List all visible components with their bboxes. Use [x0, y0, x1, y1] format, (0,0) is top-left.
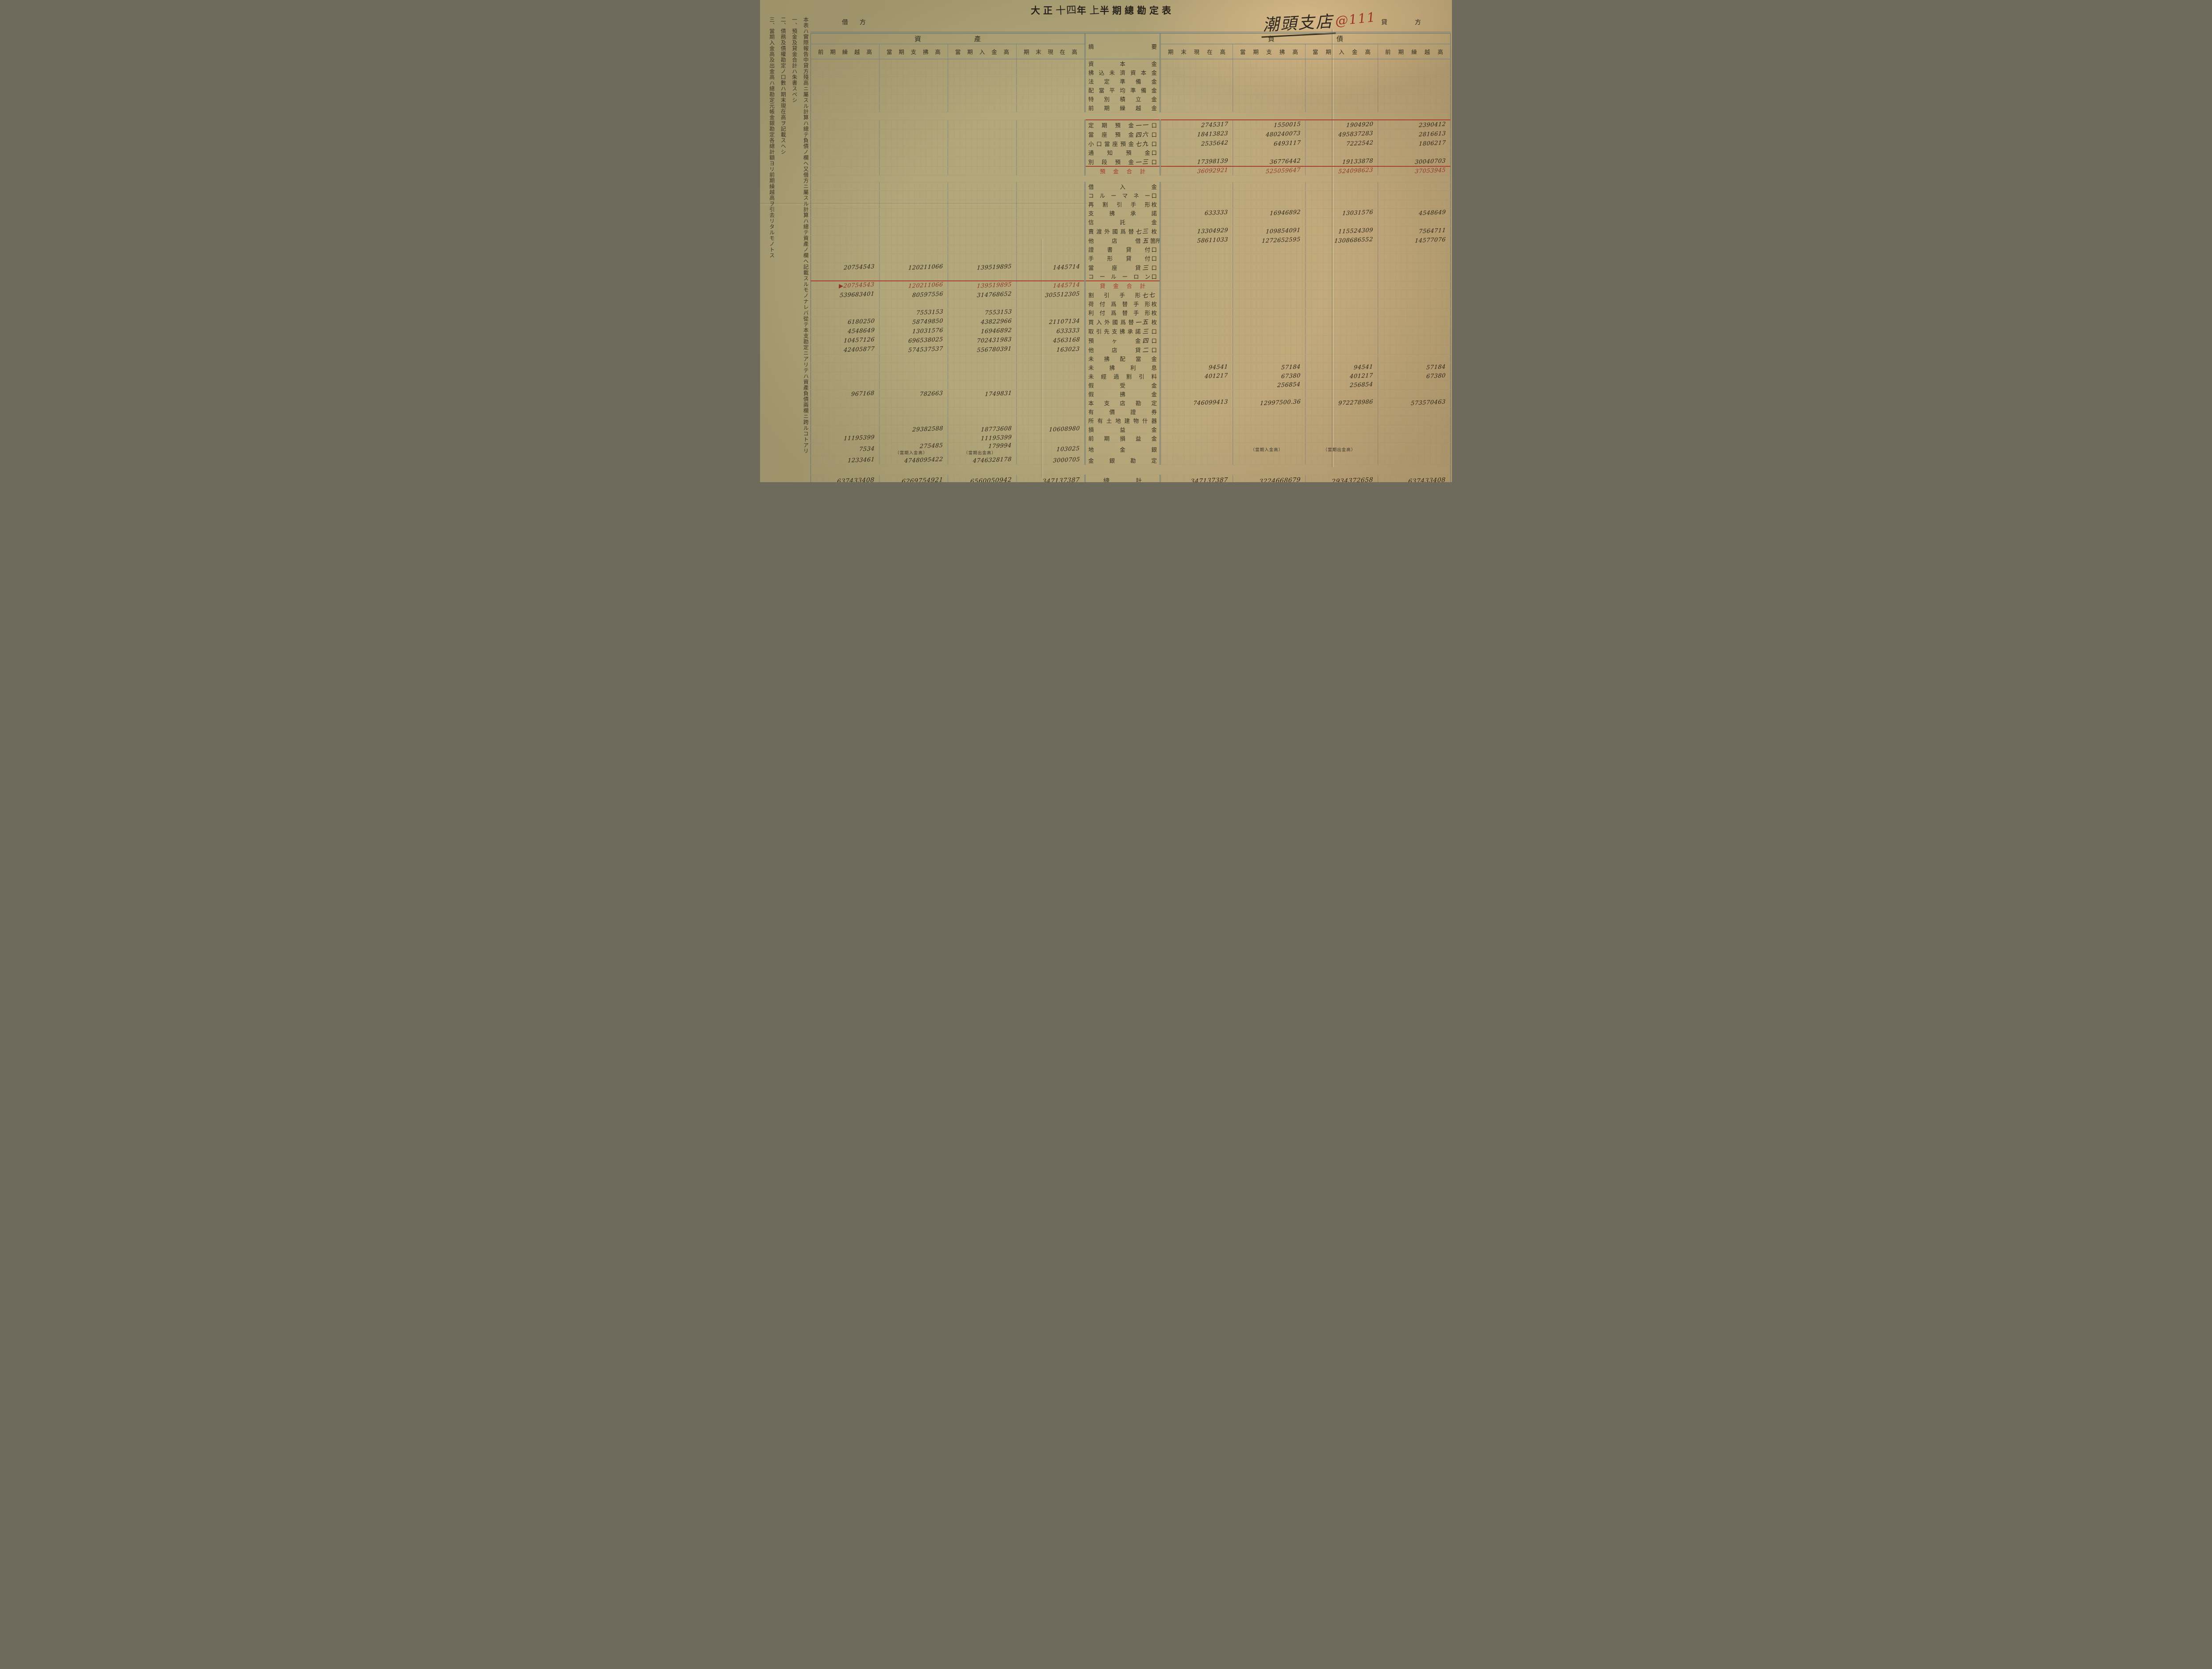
asset-amount-cell: [948, 372, 1017, 381]
handwritten-count: 四六: [1135, 130, 1149, 139]
liability-amount-cell: 36092921: [1160, 166, 1233, 176]
account-name-cell: 荷付爲替手形枚: [1085, 299, 1160, 308]
account-label: 荷付爲替手形: [1088, 299, 1150, 308]
asset-amount-cell: [811, 59, 879, 68]
asset-amount-cell: 539683401: [811, 290, 879, 299]
asset-amount-cell: [1017, 157, 1085, 167]
asset-amount-cell: 16946892: [948, 326, 1017, 336]
liability-amount-cell: [1306, 416, 1378, 425]
liability-col-ending: 期末現在高: [1160, 44, 1233, 59]
unit-label: 箇所: [1150, 236, 1157, 245]
asset-amount-cell: [948, 130, 1017, 139]
handwritten-amount: 637433408: [837, 476, 875, 482]
liability-amount-cell: [1233, 416, 1306, 425]
liability-amount-cell: [1233, 86, 1306, 95]
liability-amount-cell: [1233, 218, 1306, 226]
handwritten-amount: 1904920: [1346, 121, 1373, 129]
ledger-row: 他店借五箇所5861103312726525951308686552145770…: [811, 236, 1451, 245]
account-label: 特別積立金: [1088, 95, 1157, 103]
asset-amount-cell: [948, 226, 1017, 236]
account-name-cell: 未拂配當金: [1085, 354, 1160, 363]
asset-amount-cell: 120211066: [879, 281, 948, 290]
handwritten-amount: 13031576: [1342, 209, 1373, 217]
account-name-cell: 未拂利息: [1085, 363, 1160, 372]
asset-amount-cell: [948, 200, 1017, 209]
account-label: 配當平均準備金: [1088, 86, 1157, 94]
liability-amount-cell: 58611033: [1160, 236, 1233, 245]
asset-amount-cell: [811, 381, 879, 390]
account-label: 法定準備金: [1088, 77, 1157, 85]
liability-amount-cell: [1306, 191, 1378, 200]
unit-label: 枚: [1150, 299, 1157, 308]
handwritten-amount: 58749850: [912, 318, 943, 326]
asset-amount-cell: [948, 363, 1017, 372]
asset-amount-cell: [879, 218, 948, 226]
account-label: 前期損益金: [1088, 434, 1157, 442]
liability-amount-cell: [1160, 68, 1233, 77]
ledger-row: 再割引手形枚: [811, 200, 1451, 209]
asset-amount-cell: [1017, 407, 1085, 416]
handwritten-amount: 109854091: [1266, 227, 1301, 235]
unit-label: 口: [1150, 139, 1157, 148]
ledger-row: 9671687826631749831假拂金: [811, 390, 1451, 399]
account-name-cell: 本支店勘定: [1085, 399, 1160, 407]
asset-amount-cell: [811, 77, 879, 86]
asset-amount-cell: [811, 372, 879, 381]
unit-label: 口: [1150, 272, 1157, 280]
liability-amount-cell: [1233, 345, 1306, 354]
handwritten-count: 三: [1142, 263, 1149, 272]
account-name-cell: 假受金: [1085, 381, 1160, 390]
account-name-cell: 資本金: [1085, 59, 1160, 68]
account-label: 借入金: [1088, 182, 1157, 191]
handwritten-amount: 139519895: [977, 281, 1012, 289]
handwritten-amount: 6493117: [1273, 139, 1301, 147]
liability-amount-cell: [1233, 148, 1306, 157]
liability-amount-cell: [1160, 95, 1233, 104]
title-printed-part: 年: [1077, 5, 1089, 16]
title-printed-part: 半期總勘定表: [1100, 5, 1174, 16]
handwritten-amount: 6269754921: [901, 476, 943, 482]
account-label: 損益金: [1088, 425, 1157, 434]
liability-amount-cell: [1306, 254, 1378, 263]
liability-amount-cell: [1378, 425, 1451, 434]
liability-amount-cell: 67380: [1233, 372, 1306, 381]
account-name-cell: コルーマネー口: [1085, 191, 1160, 200]
handwritten-amount: 256854: [1350, 381, 1374, 389]
ledger-row: 支拂承諾63333316946892130315764548649: [811, 209, 1451, 218]
handwritten-amount: 12997500.36: [1260, 399, 1301, 407]
asset-amount-cell: [811, 130, 879, 139]
asset-amount-cell: 43822966: [948, 317, 1017, 326]
liability-amount-cell: 7564711: [1378, 226, 1451, 236]
asset-amount-cell: 10457126: [811, 336, 879, 345]
handwritten-amount: 13304929: [1197, 227, 1228, 235]
liability-amount-cell: [1233, 456, 1306, 465]
unit-label: 口: [1150, 157, 1157, 166]
account-name-cell: 未經過割引料: [1085, 372, 1160, 381]
liability-amount-cell: 94541: [1160, 363, 1233, 372]
handwritten-amount: 525059647: [1266, 167, 1301, 175]
asset-amount-cell: [1017, 381, 1085, 390]
liability-amount-cell: [1306, 59, 1378, 68]
handwritten-amount: 275485: [920, 443, 944, 450]
account-name-cell: コールーロン口: [1085, 272, 1160, 281]
asset-col-ending: 期末現在高: [1017, 44, 1085, 59]
asset-amount-cell: [948, 182, 1017, 191]
account-label: 定期預金: [1088, 121, 1134, 129]
handwritten-count: 五: [1142, 236, 1149, 245]
liability-col-receipts: 當期入金高: [1306, 44, 1378, 59]
asset-amount-cell: [879, 148, 948, 157]
liability-amount-cell: [1233, 434, 1306, 443]
handwritten-amount: 42405877: [843, 345, 875, 353]
asset-amount-cell: [879, 209, 948, 218]
account-name-cell: 定期預金一一口: [1085, 120, 1160, 130]
liability-amount-cell: [1378, 104, 1451, 112]
account-label: 割引手形: [1088, 291, 1141, 299]
handwritten-amount: 19133878: [1342, 157, 1373, 165]
asset-amount-cell: [811, 182, 879, 191]
ledger-row: 42405877574537537556780391163023他店貸二口: [811, 345, 1451, 354]
asset-amount-cell: 633333: [1017, 326, 1085, 336]
ledger-row: 荷付爲替手形枚: [811, 299, 1451, 308]
unit-label: 枚: [1150, 227, 1157, 235]
asset-amount-cell: 139519895: [948, 281, 1017, 290]
account-name-cell: 取引先支拂承諾三口: [1085, 326, 1160, 336]
handwritten-amount: 2745317: [1201, 121, 1228, 129]
handwritten-amount: 1308686552: [1334, 236, 1374, 245]
asset-amount-cell: [879, 104, 948, 112]
liability-amount-cell: [1233, 104, 1306, 112]
liability-amount-cell: [1378, 200, 1451, 209]
asset-amount-cell: [811, 416, 879, 425]
liability-amount-cell: 13304929: [1160, 226, 1233, 236]
liability-amount-cell: [1306, 317, 1378, 326]
ledger-row: 1233461474809542247463281783000705金銀勘定: [811, 456, 1451, 465]
liability-amount-cell: [1378, 443, 1451, 456]
note-3: 三、當期入金高及出金高ハ總勘定元帳金銀勘定各總計額ヨリ前期繰越高ヲ引去リタルモノ…: [768, 17, 776, 459]
ledger-row: 293825881877360810608980損益金: [811, 425, 1451, 434]
ledger-row: 拂込未濟資本金: [811, 68, 1451, 77]
liability-amount-cell: [1233, 290, 1306, 299]
asset-amount-cell: [811, 104, 879, 112]
liability-amount-cell: [1233, 317, 1306, 326]
liability-amount-cell: [1160, 272, 1233, 281]
liability-amount-cell: （當期入金高）: [1233, 443, 1306, 456]
liability-amount-cell: [1378, 390, 1451, 399]
liability-amount-cell: [1306, 336, 1378, 345]
asset-amount-cell: 347137387: [1017, 475, 1085, 483]
asset-amount-cell: [811, 354, 879, 363]
asset-amount-cell: 7534: [811, 443, 879, 456]
liability-amount-cell: [1378, 182, 1451, 191]
asset-amount-cell: [948, 299, 1017, 308]
ledger-row: コルーマネー口: [811, 191, 1451, 200]
handwritten-amount: 67380: [1281, 372, 1301, 380]
liability-amount-cell: [1306, 308, 1378, 317]
liability-amount-cell: [1378, 95, 1451, 104]
asset-amount-cell: [948, 104, 1017, 112]
unit-label: 枚: [1150, 200, 1157, 208]
liability-amount-cell: 401217: [1306, 372, 1378, 381]
asset-amount-cell: [948, 272, 1017, 281]
unit-label: 枚: [1150, 308, 1157, 317]
asset-amount-cell: 1233461: [811, 456, 879, 465]
account-label: 貸金合計: [1088, 281, 1157, 290]
handwritten-amount: 3000705: [1052, 457, 1080, 464]
note-1: 一、預金及貸金合計ハ朱書スベシ: [790, 17, 799, 459]
account-label: 支拂承諾: [1088, 209, 1157, 217]
asset-amount-cell: [811, 226, 879, 236]
account-label: 他店借: [1088, 236, 1141, 245]
handwritten-amount: 4548649: [1418, 209, 1446, 217]
liability-amount-cell: [1378, 407, 1451, 416]
handwritten-amount: 6180250: [847, 318, 875, 326]
handwritten-amount: 524098623: [1338, 167, 1374, 175]
liability-amount-cell: 67380: [1378, 372, 1451, 381]
asset-amount-cell: 314768652: [948, 290, 1017, 299]
account-label: 假受金: [1088, 381, 1157, 389]
account-label: 當座預金: [1088, 130, 1134, 138]
account-label: 未拂配當金: [1088, 354, 1157, 363]
asset-amount-cell: 967168: [811, 390, 879, 399]
asset-amount-cell: ▶20754543: [811, 281, 879, 290]
liability-amount-cell: [1233, 200, 1306, 209]
asset-col-payments: 當期支拂高: [879, 44, 948, 59]
asset-amount-cell: [879, 354, 948, 363]
asset-amount-cell: [1017, 363, 1085, 372]
asset-amount-cell: [879, 157, 948, 167]
liability-amount-cell: [1233, 254, 1306, 263]
account-name-cell: 割引手形七七: [1085, 290, 1160, 299]
handwritten-amount: 1806217: [1418, 139, 1446, 147]
account-label: 資本金: [1088, 59, 1157, 68]
ledger-row: 未拂利息94541571849454157184: [811, 363, 1451, 372]
account-name-cell: 他店借五箇所: [1085, 236, 1160, 245]
liability-col-payments: 當期支拂高: [1233, 44, 1306, 59]
liability-amount-cell: 57184: [1233, 363, 1306, 372]
ledger-row: 證書貸付口: [811, 245, 1451, 254]
asset-amount-cell: 18773608: [948, 425, 1017, 434]
handwritten-amount: 573570463: [1411, 399, 1446, 407]
liability-amount-cell: [1306, 345, 1378, 354]
ledger-row: 預金合計3609292152505964752409862337053945: [811, 166, 1451, 176]
liability-amount-cell: 36776442: [1233, 157, 1306, 167]
handwritten-amount: 4563168: [1052, 336, 1080, 344]
handwritten-count: 三: [1142, 326, 1149, 336]
asset-amount-cell: 11195399: [948, 434, 1017, 443]
asset-amount-cell: [1017, 226, 1085, 236]
asset-amount-cell: [811, 191, 879, 200]
ledger-row: 未拂配當金: [811, 354, 1451, 363]
liability-amount-cell: 2535642: [1160, 139, 1233, 148]
asset-amount-cell: 11195399: [811, 434, 879, 443]
liability-amount-cell: 1904920: [1306, 120, 1378, 130]
liability-amount-cell: 6493117: [1233, 139, 1306, 148]
handwritten-amount: 29382588: [912, 425, 943, 433]
column-sub-label: （當期入金高）: [879, 449, 943, 456]
liability-amount-cell: [1233, 59, 1306, 68]
asset-amount-cell: [879, 299, 948, 308]
ledger-row: 假受金256854256854: [811, 381, 1451, 390]
handwritten-amount: 94541: [1209, 364, 1229, 371]
ledger-row: ▶207545431202110661395198951445714貸金合計: [811, 281, 1451, 290]
handwritten-amount: 36092921: [1197, 167, 1228, 175]
account-label: 再割引手形: [1088, 200, 1150, 208]
liability-amount-cell: 37053945: [1378, 166, 1451, 176]
asset-amount-cell: [948, 209, 1017, 218]
asset-amount-cell: [811, 272, 879, 281]
asset-amount-cell: 6269754921: [879, 475, 948, 483]
asset-amount-cell: [1017, 254, 1085, 263]
ledger-row: コールーロン口: [811, 272, 1451, 281]
asset-amount-cell: [1017, 191, 1085, 200]
account-name-cell: 證書貸付口: [1085, 245, 1160, 254]
liability-amount-cell: [1306, 326, 1378, 336]
liability-amount-cell: 94541: [1306, 363, 1378, 372]
liability-amount-cell: [1378, 281, 1451, 290]
asset-amount-cell: 4548649: [811, 326, 879, 336]
liability-amount-cell: 19133878: [1306, 157, 1378, 167]
asset-amount-cell: 556780391: [948, 345, 1017, 354]
liability-amount-cell: 2934372658: [1306, 475, 1378, 483]
liability-amount-cell: [1306, 390, 1378, 399]
liability-amount-cell: [1378, 416, 1451, 425]
handwritten-amount: 3224668679: [1259, 476, 1301, 482]
ledger-row: 當座預金四六口184138234802400734958372832816613: [811, 130, 1451, 139]
handwritten-count: 一一: [1135, 120, 1149, 130]
liability-amount-cell: 256854: [1233, 381, 1306, 390]
asset-amount-cell: [879, 191, 948, 200]
handwritten-amount: 2934372658: [1331, 476, 1373, 482]
asset-amount-cell: [1017, 209, 1085, 218]
asset-amount-cell: 13031576: [879, 326, 948, 336]
account-name-cell: 他店貸二口: [1085, 345, 1160, 354]
asset-amount-cell: 7553153: [948, 308, 1017, 317]
asset-amount-cell: [948, 236, 1017, 245]
liability-amount-cell: [1306, 434, 1378, 443]
asset-col-carryover: 前期繰越高: [811, 44, 879, 59]
account-label: 當座貸: [1088, 263, 1141, 272]
asset-amount-cell: [1017, 166, 1085, 176]
asset-amount-cell: [879, 272, 948, 281]
account-name-cell: 金銀勘定: [1085, 456, 1160, 465]
liability-amount-cell: [1378, 68, 1451, 77]
handwritten-count: 一五: [1135, 317, 1149, 326]
account-label: 總計: [1088, 476, 1157, 482]
asset-amount-cell: 42405877: [811, 345, 879, 354]
liability-amount-cell: [1378, 299, 1451, 308]
liability-amount-cell: [1306, 290, 1378, 299]
asset-amount-cell: [811, 254, 879, 263]
liability-amount-cell: [1160, 317, 1233, 326]
handwritten-amount: 94541: [1354, 364, 1374, 371]
unit-label: 口: [1150, 245, 1157, 253]
liability-amount-cell: 12997500.36: [1233, 399, 1306, 407]
account-label: 利付爲替手形: [1088, 308, 1150, 317]
unit-label: 口: [1150, 254, 1157, 262]
summary-column-header: 摘要: [1085, 33, 1160, 59]
account-name-cell: 再割引手形枚: [1085, 200, 1160, 209]
handwritten-amount: 163023: [1056, 345, 1080, 353]
account-label: 本支店勘定: [1088, 399, 1157, 407]
liability-amount-cell: [1378, 434, 1451, 443]
handwritten-amount: 556780391: [977, 345, 1012, 353]
asset-amount-cell: [879, 182, 948, 191]
account-label: 通知預金: [1088, 148, 1150, 157]
asset-amount-cell: [811, 95, 879, 104]
account-name-cell: 拂込未濟資本金: [1085, 68, 1160, 77]
liability-amount-cell: 1806217: [1378, 139, 1451, 148]
handwritten-amount: 746099413: [1193, 399, 1229, 407]
asset-amount-cell: [1017, 218, 1085, 226]
handwritten-amount: 702431983: [977, 336, 1012, 344]
account-name-cell: 特別積立金: [1085, 95, 1160, 104]
handwritten-amount: 20754543: [843, 263, 875, 271]
ledger-row: 小口當座預金七九口2535642649311772225421806217: [811, 139, 1451, 148]
asset-amount-cell: [879, 363, 948, 372]
asset-amount-cell: [1017, 434, 1085, 443]
liability-amount-cell: 401217: [1160, 372, 1233, 381]
handwritten-amount: 21107134: [1048, 318, 1080, 326]
asset-amount-cell: 637433408: [811, 475, 879, 483]
ledger-row: 前期繰越金: [811, 104, 1451, 112]
account-label: コールーロン: [1088, 272, 1150, 280]
asset-amount-cell: [1017, 95, 1085, 104]
handwritten-amount: 43822966: [980, 318, 1012, 326]
asset-amount-cell: [879, 254, 948, 263]
scanned-ledger-document: 本表ハ實際報告中貸方殘高ニ屬スル計算ハ總テ負債ノ欄ヘ又借方ニ屬スル計算ハ總テ資產…: [760, 0, 1452, 482]
handwritten-amount: 4548649: [847, 327, 875, 335]
handwritten-amount: 57184: [1281, 364, 1301, 371]
handwritten-amount: 1749831: [984, 390, 1012, 398]
handwritten-amount: 539683401: [840, 291, 875, 299]
asset-amount-cell: [1017, 272, 1085, 281]
asset-amount-cell: 1445714: [1017, 263, 1085, 272]
asset-amount-cell: [879, 226, 948, 236]
liability-amount-cell: 30040703: [1378, 157, 1451, 167]
account-name-cell: 信託金: [1085, 218, 1160, 226]
ledger-table: 資產 摘要 負債 前期繰越高 當期支拂高 當期入金高 期末現在高 期末現在高 當…: [810, 32, 1451, 482]
asset-amount-cell: [811, 399, 879, 407]
account-label: 所有土地建物什器: [1088, 416, 1157, 425]
asset-amount-cell: 103025: [1017, 443, 1085, 456]
liability-amount-cell: 2390412: [1378, 120, 1451, 130]
handwritten-amount: 637433408: [1408, 476, 1446, 482]
liability-amount-cell: [1306, 148, 1378, 157]
asset-amount-cell: [948, 399, 1017, 407]
unit-label: 口: [1150, 148, 1157, 157]
handwritten-amount: 37053945: [1414, 167, 1446, 175]
liability-amount-cell: [1160, 326, 1233, 336]
handwritten-amount: 4748095422: [904, 456, 944, 464]
handwritten-amount: 18413823: [1197, 130, 1228, 138]
account-name-cell: 通知預金口: [1085, 148, 1160, 157]
ledger-row: 未經過割引料4012176738040121767380: [811, 372, 1451, 381]
handwritten-amount: 16946892: [1269, 209, 1301, 217]
handwritten-amount: 2816613: [1418, 130, 1446, 138]
handwritten-amount: 1272652595: [1262, 236, 1301, 245]
handwritten-amount: 179994: [988, 443, 1012, 450]
asset-amount-cell: 21107134: [1017, 317, 1085, 326]
liability-amount-cell: [1233, 281, 1306, 290]
liability-col-carryover: 前期繰越高: [1378, 44, 1451, 59]
title-printed-part: 大正: [1031, 5, 1056, 16]
account-label: 信託金: [1088, 218, 1157, 226]
ledger-row: 通知預金口: [811, 148, 1451, 157]
liability-amount-cell: [1306, 272, 1378, 281]
